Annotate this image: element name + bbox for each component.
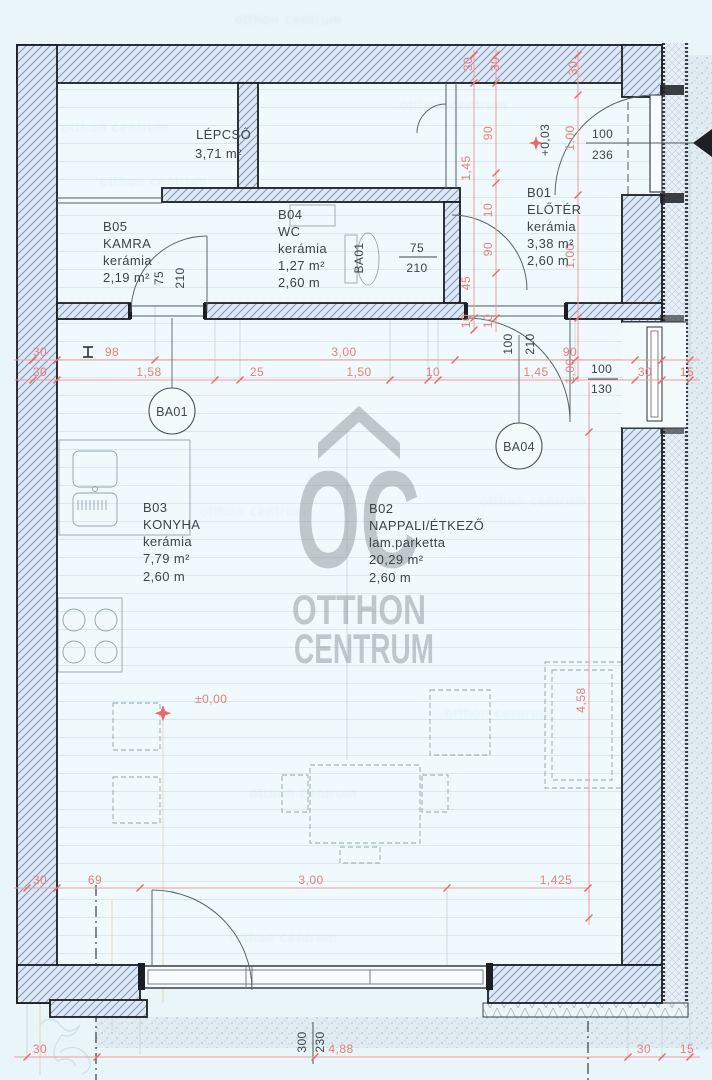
room-code: B04 [278,207,302,222]
dim-label: 1,50 [346,365,371,379]
room-floor: lam.parketta [369,535,446,550]
tag-ba01: BA01 [156,405,188,419]
door-size-width: 100 [592,127,613,141]
faint-watermark: otthon centrum [235,11,342,27]
faint-watermark: otthon centrum [200,503,307,519]
room-area: 1,27 m² [278,258,325,273]
wall-bottom-left [17,965,140,1003]
wall-right-long [622,428,662,965]
dim-label: 30 [33,365,47,379]
room-height: 2,60 m [527,253,569,268]
dim-label: 10 [459,314,473,328]
room-area: 7,79 m² [143,551,190,566]
dim-label: 10 [481,203,495,217]
dim-label: 4,88 [328,1042,353,1056]
right-window [622,322,688,428]
faint-watermark: otthon centrum [400,97,507,113]
door-size-width: 75 [152,271,166,285]
exterior-stipple-bottom [95,1017,688,1048]
wall-left [17,45,57,1003]
tag-ba01-small: BA01 [352,243,366,274]
door-size-width: 300 [295,1031,309,1052]
door-size-width: 75 [410,241,424,255]
room-area: 3,38 m² [527,236,574,251]
dim-label: 90 [481,126,495,140]
exterior-stipple-right [688,55,712,1050]
door-size-width: 100 [501,333,515,354]
room-code: B02 [369,501,393,516]
faint-watermark: otthon centrum [445,705,552,721]
room-name: LÉPCSŐ [196,127,251,142]
dim-label: 98 [105,345,119,359]
dim-label: 90 [563,345,577,359]
dim-label: 1,58 [136,365,161,379]
faint-watermark: otthon centrum [62,119,169,135]
room-height: 2,60 m [278,275,320,290]
dim-label: 30 [566,61,580,75]
tag-ba04: BA04 [503,440,535,454]
faint-watermark: otthon centrum [230,929,337,945]
insulation-band [662,43,688,1017]
dim-label: 45 [459,276,473,290]
wall-mid-a [57,303,130,319]
dim-label: 30 [461,57,475,71]
room-name: WC [278,224,300,239]
dim-label: 3,00 [298,873,323,887]
watermark-line2: CENTRUM [294,625,434,672]
dim-label: 1,45 [523,365,548,379]
room-floor: kerámia [103,253,152,268]
room-height: 2,60 m [369,570,411,585]
room-code: B05 [103,219,127,234]
room-area: 3,71 m² [195,146,242,161]
door-size-height: 236 [592,148,613,162]
dim-label: 10 [426,365,440,379]
dim-label: 3,00 [331,345,356,359]
wall-bottom-right [488,965,662,1003]
dim-label: 25 [250,365,264,379]
dim-label: 69 [88,873,102,887]
room-floor: kerámia [278,241,327,256]
dim-label: 30 [33,345,47,359]
room-floor: kerámia [143,534,192,549]
door-size-height: 230 [313,1031,327,1052]
dim-label: 4,58 [574,687,588,712]
dim-label: 1,00 [563,358,577,383]
room-name: KONYHA [143,517,200,532]
faint-watermark: otthon centrum [250,785,357,801]
room-area: 20,29 m² [369,552,424,567]
floor-plan-drawing: OC OTTHON CENTRUM otthon centrum otthon … [0,0,712,1080]
dim-label: 10 [481,314,495,328]
wall-wc-top [162,188,460,202]
room-area: 2,19 m² [103,270,150,285]
room-code: B03 [143,500,167,515]
wall-stair [238,83,258,202]
dim-label: 1,00 [563,125,577,150]
door-size-height: 210 [173,267,187,288]
wall-mid-c [566,303,662,319]
room-code: B01 [527,185,551,200]
room-floor: kerámia [527,219,576,234]
room-name: NAPPALI/ÉTKEZŐ [369,518,484,533]
window-size-height: 130 [591,382,612,396]
dim-label: 30 [488,57,502,71]
door-size-height: 210 [523,333,537,354]
door-size-height: 210 [406,261,427,275]
wall-mid-b [205,303,466,319]
window-size-width: 100 [591,362,612,376]
room-height: 2,60 m [143,569,185,584]
dim-label: 30 [33,873,47,887]
dim-label: 15 [680,1042,694,1056]
faint-watermark: otthon centrum [480,492,587,508]
dim-label: 30 [637,1042,651,1056]
room-name: ELŐTÉR [527,202,581,217]
dim-label: 90 [481,242,495,256]
floor-plan: OC OTTHON CENTRUM otthon centrum otthon … [0,0,712,1080]
level-label-entry: +0,03 [538,124,552,156]
wall-bottom-step [50,1000,147,1017]
dim-label: 1,45 [459,155,473,180]
wall-wc-right [444,202,460,303]
level-label-ground: ±0,00 [195,692,227,706]
dim-label: 1,425 [540,873,573,887]
insulation-bottom [483,1003,688,1017]
dim-label: 15 [680,365,694,379]
dim-label: 30 [33,1042,47,1056]
dim-label: 30 [638,365,652,379]
wall-right-top [622,45,662,97]
room-name: KAMRA [103,236,151,251]
faint-watermark: otthon centrum [100,173,207,189]
